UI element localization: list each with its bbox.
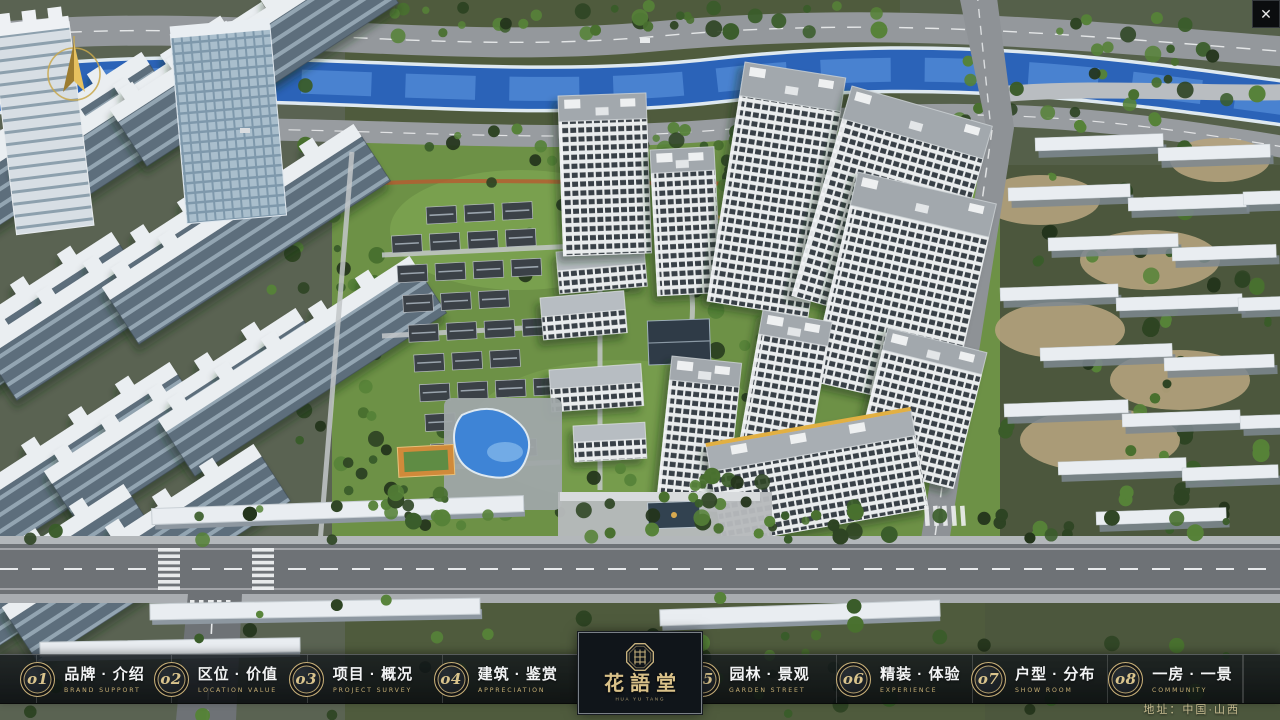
compass-icon (44, 34, 104, 106)
nav-label-en: PROJECT SURVEY (333, 687, 412, 694)
nav-number-badge: o8 (1108, 662, 1143, 697)
nav-number-badge: o4 (434, 662, 469, 697)
nav-number-badge: o6 (836, 662, 871, 697)
seal-emblem-icon (625, 642, 655, 672)
nav-label-cn: 项目 · 概况 (333, 663, 413, 684)
nav-number-badge: o1 (20, 662, 55, 697)
nav-item-room-view[interactable]: o8 一房 · 一景 COMMUNITY (1108, 655, 1243, 703)
nav-label-en: APPRECIATION (478, 687, 545, 694)
project-logo-panel[interactable]: 花語堂 HUA YU TANG (578, 632, 702, 714)
aerial-masterplan-render (0, 0, 1280, 720)
nav-label-cn: 区位 · 价值 (198, 663, 278, 684)
nav-label-en: BRAND SUPPORT (64, 687, 141, 694)
nav-label-cn: 户型 · 分布 (1015, 663, 1095, 684)
nav-label-en: COMMUNITY (1152, 687, 1207, 694)
nav-item-landscape[interactable]: o5 园林 · 景观 GARDEN STREET (702, 655, 837, 703)
logo-title: 花語堂 (598, 673, 682, 695)
nav-label-cn: 品牌 · 介绍 (64, 663, 144, 684)
nav-item-project-overview[interactable]: o3 项目 · 概况 PROJECT SURVEY (308, 655, 443, 703)
nav-label-cn: 一房 · 一景 (1152, 663, 1232, 684)
masterplan-app: ✕ o1 品牌 · 介绍 BRAND SUPPORT o2 区位 · 价值 LO… (0, 0, 1280, 720)
logo-subtitle: HUA YU TANG (615, 697, 665, 702)
nav-item-location-value[interactable]: o2 区位 · 价值 LOCATION VALUE (172, 655, 307, 703)
nav-label-en: GARDEN STREET (729, 687, 805, 694)
nav-label-cn: 建筑 · 鉴赏 (478, 663, 558, 684)
nav-label-cn: 园林 · 景观 (729, 663, 809, 684)
nav-item-floorplan-distribution[interactable]: o7 户型 · 分布 SHOW ROOM (973, 655, 1108, 703)
nav-label-en: SHOW ROOM (1015, 687, 1073, 694)
nav-item-architecture[interactable]: o4 建筑 · 鉴赏 APPRECIATION (443, 655, 578, 703)
swimming-pool (444, 398, 562, 510)
nav-number-badge: o7 (971, 662, 1006, 697)
nav-number-badge: o3 (289, 662, 324, 697)
project-address: 地址：中国·山西 (1143, 701, 1240, 717)
navbar-edge (1243, 655, 1280, 703)
nav-label-cn: 精装 · 体验 (880, 663, 960, 684)
nav-number-badge: o2 (154, 662, 189, 697)
nav-item-interior-experience[interactable]: o6 精装 · 体验 EXPERIENCE (837, 655, 972, 703)
nav-item-brand-intro[interactable]: o1 品牌 · 介绍 BRAND SUPPORT (37, 655, 172, 703)
building-glass-tower (170, 18, 287, 224)
nav-label-en: LOCATION VALUE (198, 687, 277, 694)
close-button[interactable]: ✕ (1252, 0, 1280, 28)
nav-label-en: EXPERIENCE (880, 687, 937, 694)
